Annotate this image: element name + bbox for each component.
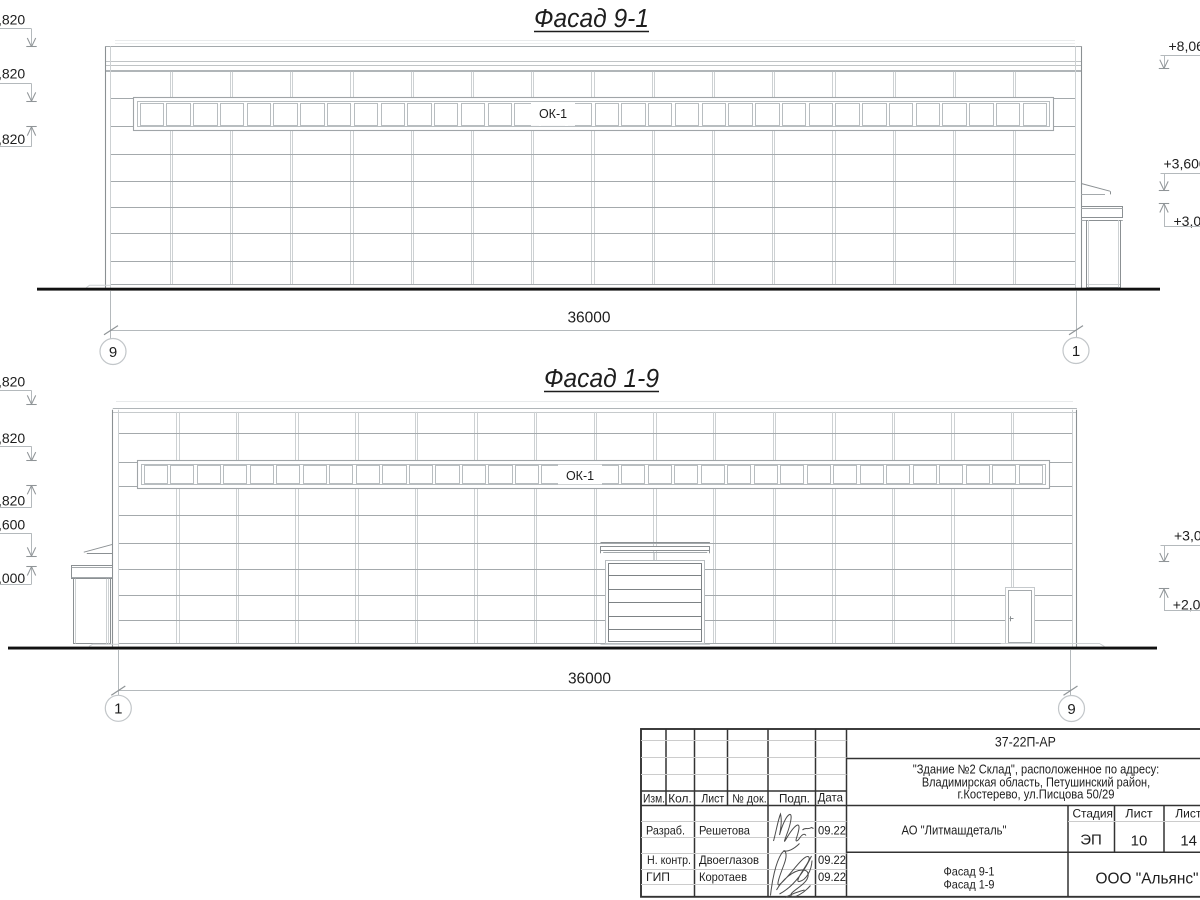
svg-text:+6,820: +6,820 [0, 66, 25, 82]
svg-text:ООО "Альянс": ООО "Альянс" [1096, 870, 1199, 887]
svg-text:Дата: Дата [818, 791, 844, 805]
svg-text:г.Костерево, ул.Писцова 50/29: г.Костерево, ул.Писцова 50/29 [958, 787, 1115, 802]
svg-text:+6,820: +6,820 [0, 430, 25, 446]
svg-text:Стадия: Стадия [1072, 807, 1113, 821]
svg-text:09.22: 09.22 [818, 853, 846, 867]
svg-text:36000: 36000 [568, 671, 611, 688]
svg-text:Изм.: Изм. [643, 792, 665, 806]
svg-text:Лист: Лист [701, 792, 724, 806]
svg-text:+8,060: +8,060 [1169, 38, 1200, 54]
svg-text:+3,000: +3,000 [0, 570, 25, 586]
svg-text:Фасад 9-1: Фасад 9-1 [944, 865, 995, 879]
svg-text:Фасад 1-9: Фасад 1-9 [944, 878, 995, 892]
svg-text:ОК-1: ОК-1 [539, 107, 567, 121]
svg-text:14: 14 [1180, 833, 1197, 850]
svg-text:АО "Литмашдеталь": АО "Литмашдеталь" [902, 823, 1007, 838]
svg-text:+8,820: +8,820 [0, 12, 25, 28]
svg-text:9: 9 [109, 344, 117, 361]
svg-text:10: 10 [1131, 833, 1148, 850]
svg-text:36000: 36000 [567, 310, 610, 327]
svg-text:+3,820: +3,820 [0, 131, 25, 147]
svg-text:+3,000: +3,000 [1174, 528, 1200, 544]
svg-text:+3,600: +3,600 [1164, 156, 1200, 172]
svg-text:Листов: Листов [1175, 807, 1200, 821]
svg-text:№ док.: № док. [732, 792, 766, 806]
svg-text:ОК-1: ОК-1 [566, 469, 594, 483]
svg-text:Лист: Лист [1125, 807, 1153, 821]
svg-text:Фасад 9-1: Фасад 9-1 [534, 5, 649, 33]
svg-text:Фасад 1-9: Фасад 1-9 [544, 365, 659, 393]
svg-text:1: 1 [1072, 343, 1080, 360]
svg-text:Двоеглазов: Двоеглазов [699, 853, 759, 867]
svg-text:Кол.: Кол. [668, 792, 692, 806]
svg-text:Н. контр.: Н. контр. [647, 853, 691, 867]
svg-text:+3,820: +3,820 [0, 493, 25, 509]
svg-text:Разраб.: Разраб. [646, 824, 685, 838]
svg-text:9: 9 [1067, 701, 1075, 718]
svg-text:+8,820: +8,820 [0, 373, 25, 389]
svg-text:37-22П-АР: 37-22П-АР [995, 735, 1056, 750]
svg-text:1: 1 [114, 701, 122, 718]
svg-text:ГИП: ГИП [646, 870, 670, 884]
svg-text:Коротаев: Коротаев [699, 870, 747, 884]
svg-text:Решетова: Решетова [699, 824, 750, 838]
svg-text:09.22: 09.22 [818, 824, 846, 838]
svg-text:+3,600: +3,600 [0, 517, 25, 533]
svg-text:09.22: 09.22 [818, 870, 846, 884]
svg-text:Подп.: Подп. [779, 792, 810, 806]
svg-text:ЭП: ЭП [1080, 832, 1102, 849]
